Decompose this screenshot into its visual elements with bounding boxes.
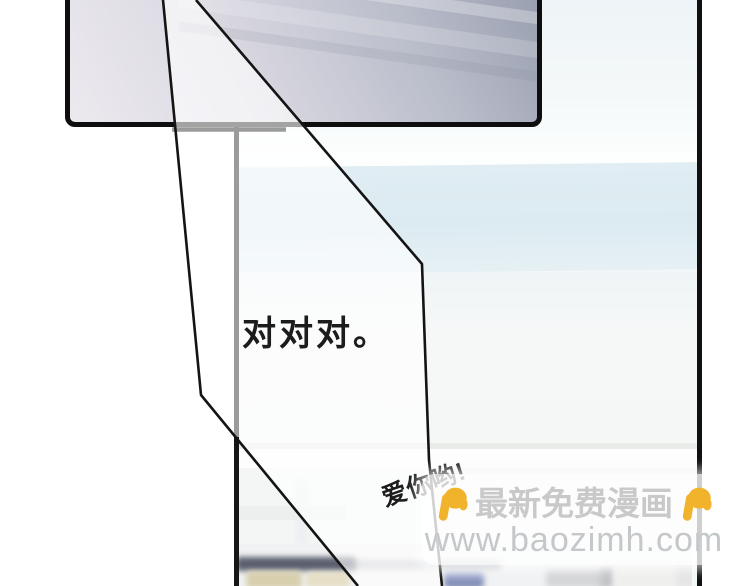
shelf-item-cream — [306, 572, 350, 586]
wall-mid-area — [236, 272, 697, 443]
shelf-upright — [296, 480, 308, 544]
shelf-item-white — [614, 568, 676, 586]
shelf-item-grayend — [676, 566, 692, 586]
panel-ceiling — [65, 0, 542, 127]
shelf-item-gray — [546, 570, 604, 586]
shelf-dark-edge — [236, 557, 356, 571]
shelf-item-tan — [246, 571, 302, 586]
comic-page: 对对对。 爱你哟! 最新免费漫画 www.baozimh.com — [0, 0, 750, 586]
watermark-box: 最新免费漫画 www.baozimh.com — [422, 474, 726, 565]
shelf-item-blue — [444, 572, 484, 586]
wall-blue-band — [236, 162, 697, 275]
shelf-faint-band — [236, 506, 346, 520]
watermark-site-url: www.baozimh.com — [424, 523, 724, 557]
watermark-site-label: 最新免费漫画 — [474, 487, 674, 520]
speech-text-affirmation: 对对对。 — [242, 306, 390, 355]
shelf-item-dark — [600, 568, 614, 586]
shelf-bright-band — [236, 449, 697, 468]
